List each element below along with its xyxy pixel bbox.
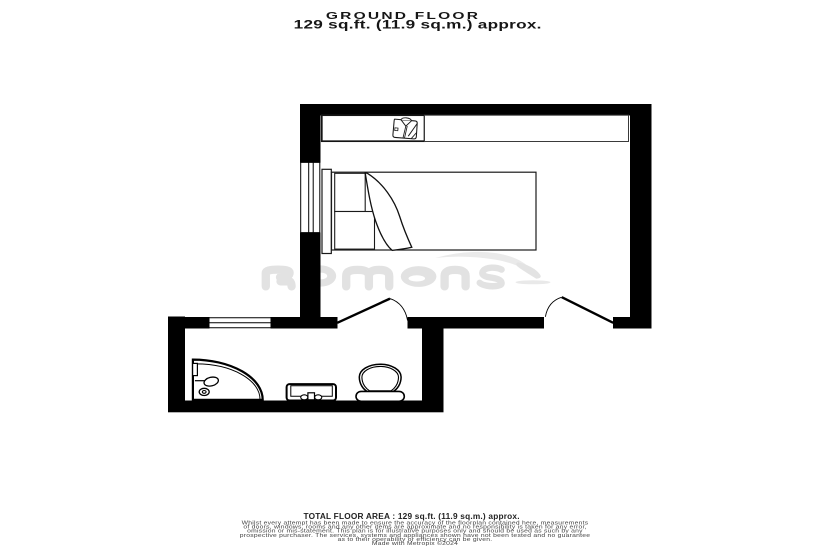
svg-text:Made with Metropix ©2024: Made with Metropix ©2024 (372, 541, 459, 547)
svg-text:129 sq.ft. (11.9 sq.m.) approx: 129 sq.ft. (11.9 sq.m.) approx. (294, 19, 542, 32)
